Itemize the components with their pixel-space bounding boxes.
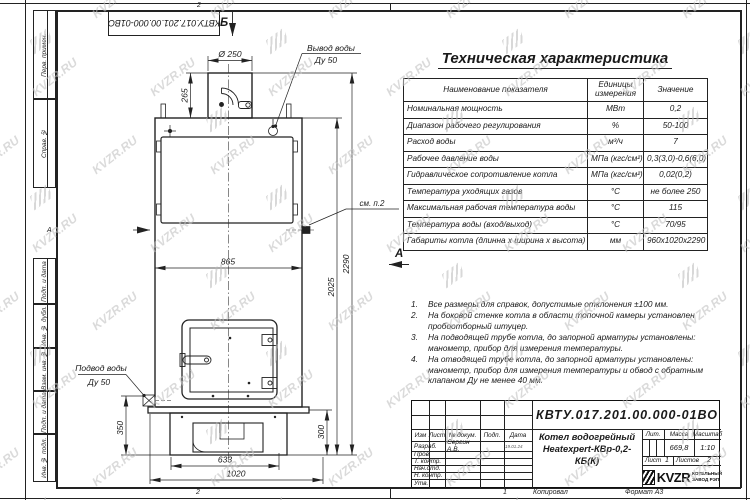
note-item: 3.На подводящей трубе котла, до запорной… xyxy=(411,332,713,353)
table-row: Гидравлическое сопротивление котлаМПа (к… xyxy=(404,168,708,185)
frame-right xyxy=(740,10,742,488)
dim-base-w2: 1020 xyxy=(227,469,246,479)
sheet-edge-right xyxy=(746,0,747,500)
water-out-label-2: Ду 50 xyxy=(314,55,337,65)
furnace-door-face xyxy=(190,328,273,392)
dim-chimney-dia: Ø 250 xyxy=(217,49,241,59)
table-row: Расход водым³/ч7 xyxy=(404,135,708,152)
see-note-leader xyxy=(309,209,399,225)
tb-header-mass: Масса xyxy=(664,430,694,439)
notes-list: 1.Все размеры для справок, допустимые от… xyxy=(411,299,713,387)
tb-header-podp: Подп. xyxy=(480,430,504,440)
upper-panel xyxy=(161,137,293,223)
table-row: Диапазон рабочего регулирования%50-100 xyxy=(404,118,708,135)
company-logo: KVZR КОТЕЛЬНЫЙ ЗАВОД РЭП xyxy=(642,465,722,489)
margin-box-podp-data-1: Подп. и дата xyxy=(33,258,56,305)
top-pin-left xyxy=(161,104,166,118)
watermark-text: KVZR.RU xyxy=(0,133,22,177)
note-item: 1.Все размеры для справок, допустимые от… xyxy=(411,299,713,309)
margin-box-inv-podl: Инв. № подл. xyxy=(33,433,56,482)
spec-col-name: Наименование показателя xyxy=(404,79,588,102)
furnace-door xyxy=(182,320,277,399)
tb-sheets-label: Листов xyxy=(676,456,700,465)
top-pin-right xyxy=(287,104,292,118)
format-label: Формат А3 xyxy=(625,489,663,496)
watermark-logo-icon xyxy=(678,262,700,289)
zone-row-letter: А xyxy=(47,227,52,234)
water-out-label-1: Вывод воды xyxy=(307,43,356,53)
margin-box-vzam-inv: Взам. инв. № xyxy=(33,347,56,392)
base-curve xyxy=(193,441,206,452)
tb-sheet-label: Лист xyxy=(645,456,661,465)
dimension-lines xyxy=(121,56,357,484)
spec-col-value: Значение xyxy=(644,79,708,102)
tb-sheets-value: 2 xyxy=(700,456,718,465)
dim-h-total: 2290 xyxy=(341,254,351,274)
margin-box-perv-primen: Перв. примен. xyxy=(33,10,56,100)
door-hinges xyxy=(262,335,277,389)
panel-hinges xyxy=(157,141,298,215)
see-note-label: см. п.2 xyxy=(359,199,385,208)
tb-sheet-value: 1 xyxy=(661,456,673,465)
kvzr-logo-icon xyxy=(642,470,655,485)
note-item: 2.На боковой стенке котла в области топо… xyxy=(411,310,713,331)
datum-target xyxy=(164,125,176,137)
margin-box-inv-dubl: Инв. № дубл. xyxy=(33,303,56,349)
watermark-logo-icon xyxy=(442,262,464,289)
table-row: Рабочее давление водыМПа (кгс/см²)0,3(3,… xyxy=(404,151,708,168)
zone-label-top: 2 xyxy=(197,2,201,9)
copied-label: Копировал xyxy=(533,489,568,496)
dim-base-h: 300 xyxy=(316,425,326,439)
tb-product-name: Котел водогрейный Heatexpert-КВр-0,2-КБ(… xyxy=(532,429,642,469)
dim-h-body: 2025 xyxy=(326,277,336,297)
tb-product-name-2: Heatexpert-КВр-0,2-КБ(К) xyxy=(532,443,642,467)
zone-tick-top xyxy=(390,3,391,10)
kvzr-logo-word: KVZR xyxy=(657,470,690,485)
door-handle xyxy=(180,354,211,367)
tb-mass-value: 669,8 xyxy=(664,440,694,455)
zone-label-bottom-right: 1 xyxy=(503,489,507,496)
dim-chimney-h: 265 xyxy=(180,88,190,103)
dim-body-w: 865 xyxy=(221,257,235,267)
margin-box-podp-data-2: Подп. и дата xyxy=(33,390,56,435)
dim-inlet-h: 350 xyxy=(115,421,125,435)
tb-scale-value: 1:10 xyxy=(694,440,721,455)
table-row: Температура уходящих газов°Сне более 250 xyxy=(404,184,708,201)
drawing-sheet: KVZR.RUKVZR.RUKVZR.RUKVZR.RUKVZR.RUKVZR.… xyxy=(0,0,750,500)
tb-product-name-1: Котел водогрейный xyxy=(539,431,635,443)
spec-table: Наименование показателя Единицы измерени… xyxy=(403,78,708,251)
tb-razrab-name: Сергин А.В. xyxy=(447,441,480,451)
water-in-label-1: Подвод воды xyxy=(75,363,127,373)
note-item: 4.На отводящей трубе котла, до запорной … xyxy=(411,354,713,385)
door-bolts xyxy=(212,337,251,398)
tb-header-lit: Лит. xyxy=(642,430,664,439)
sheet-edge-top xyxy=(0,3,750,4)
spec-col-units: Единицы измерения xyxy=(588,79,644,102)
table-row: Температура воды (вход/выход)°С70/95 xyxy=(404,217,708,234)
water-in-label-2: Ду 50 xyxy=(87,377,110,387)
inlet-fitting xyxy=(143,395,173,406)
margin-box-sprav: Справ. № xyxy=(33,98,56,188)
table-row: Номинальная мощностьМВт0,2 xyxy=(404,102,708,119)
spec-header-row: Наименование показателя Единицы измерени… xyxy=(404,79,708,102)
tb-header-data: Дата xyxy=(504,430,532,440)
title-block: Изм Лист № докум. Подп. Дата Разраб. Сер… xyxy=(411,400,720,488)
view-a-label: А xyxy=(394,248,403,260)
tb-header-scale: Масштаб xyxy=(694,430,721,439)
view-b-label: Б xyxy=(220,17,228,29)
table-row: Габариты котла (длинна х ширина х высота… xyxy=(404,234,708,251)
watermark-text: KVZR.RU xyxy=(0,289,22,333)
ash-inner xyxy=(220,423,244,439)
spec-table-title: Техническая характеристика xyxy=(403,50,707,67)
chimney xyxy=(208,73,252,118)
ash-opening xyxy=(193,423,263,452)
dim-base-w1: 633 xyxy=(218,455,232,465)
table-row: Максимальная рабочая температура воды°С1… xyxy=(404,201,708,218)
chimney-elbow xyxy=(220,88,252,109)
kvzr-logo-subtitle: КОТЕЛЬНЫЙ ЗАВОД РЭП xyxy=(692,471,722,482)
zone-label-bottom-left: 2 xyxy=(196,489,200,496)
tb-header-izm: Изм xyxy=(412,430,429,440)
tb-doc-number: КВТУ.017.201.00.000-01ВО xyxy=(532,401,722,429)
tb-razrab-date: 19.01.24 xyxy=(505,441,532,451)
sheet-edge-left xyxy=(25,0,26,500)
tb-header-list: Лист xyxy=(429,430,445,440)
boiler-drawing: Ø 250 265 865 350 633 1020 300 2025 2290… xyxy=(56,10,410,490)
sheet-edge-bottom xyxy=(0,498,750,499)
watermark-text: KVZR.RU xyxy=(0,445,22,489)
